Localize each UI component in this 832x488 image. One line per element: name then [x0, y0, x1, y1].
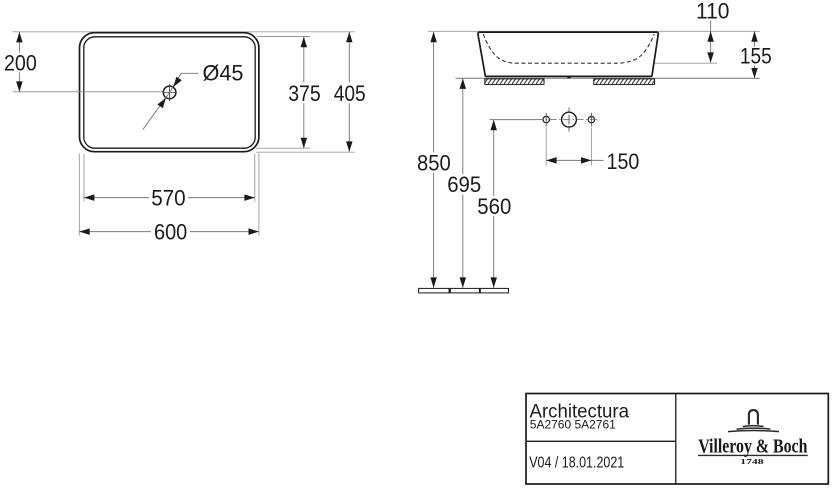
svg-text:600: 600	[154, 220, 187, 245]
svg-text:Ø45: Ø45	[203, 60, 244, 85]
svg-text:570: 570	[151, 186, 186, 211]
svg-text:Villeroy & Boch: Villeroy & Boch	[698, 436, 807, 457]
svg-text:405: 405	[334, 81, 366, 106]
svg-text:850: 850	[417, 151, 451, 176]
svg-text:1748: 1748	[740, 457, 764, 466]
svg-text:150: 150	[607, 149, 640, 174]
svg-text:110: 110	[696, 0, 729, 23]
svg-text:155: 155	[740, 44, 772, 69]
svg-text:V04 / 18.01.2021: V04 / 18.01.2021	[529, 455, 624, 472]
svg-text:560: 560	[477, 194, 511, 219]
svg-text:200: 200	[4, 51, 37, 76]
svg-text:695: 695	[447, 172, 481, 197]
svg-text:375: 375	[288, 81, 321, 106]
svg-text:5A2760 5A2761: 5A2760 5A2761	[530, 418, 616, 432]
